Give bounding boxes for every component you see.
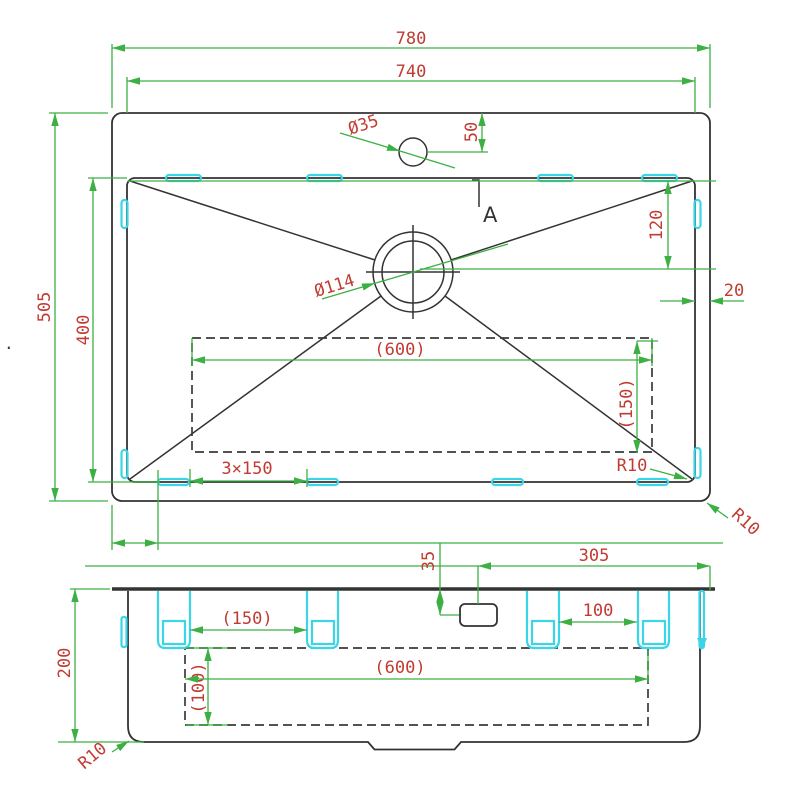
sink-outer-outline [112,113,710,501]
dim-section-cutout-width: (600) [374,658,425,678]
cad-drawing-canvas: . A [0,0,792,800]
mounting-clip [695,200,701,228]
dim-faucet-dia: Ø35 [346,111,381,140]
bowl-outline [127,178,695,482]
dim-faucet-from-edge: 305 [579,546,610,566]
dim-section-corner-radius: R10 [75,739,111,774]
section-faucet-knockout [460,604,497,626]
dim-bowl-depth: 400 [74,315,94,346]
mounting-clip [695,448,701,478]
hanger-bracket-clip [643,621,665,644]
top-view: A 780 740 505 40 [35,29,763,540]
dim-clip-pitch: 3×150 [221,459,272,479]
dim-cutout-depth: (150) [617,378,637,429]
dim-drain-offset: 120 [647,210,667,241]
dim-faucet-drop: 35 [419,551,439,571]
dim-outer-corner-radius: R10 [727,505,763,540]
dim-clip-span-left: (150) [221,609,272,629]
dim-drain-dia: Ø114 [312,271,357,302]
dim-overall-width: 780 [396,29,427,49]
dim-bowl-width: 740 [396,62,427,82]
dim-faucet-offset: 50 [462,122,482,142]
leader-faucet-dia [340,133,400,151]
dim-overall-depth: 505 [35,292,55,323]
leader-drain-dia [375,244,508,283]
dim-clip-span-right: 100 [583,601,614,621]
section-label: A [483,203,498,227]
hanger-bracket-clip [163,621,185,644]
mounting-clip [122,450,128,478]
dim-cutout-width: (600) [374,340,425,360]
leader-outer-corner [707,503,728,518]
mounting-clip [122,617,127,647]
dim-rim-gap: 20 [724,281,744,301]
mounting-clip [122,200,128,228]
hanger-bracket-clip [312,621,334,644]
dim-section-cutout-depth: (100) [189,662,209,713]
section-cut-marker [472,180,479,207]
leader-section-corner [112,741,129,752]
dim-bowl-corner-radius: R10 [617,456,648,476]
dim-section-height: 200 [55,648,75,679]
hanger-bracket-clip [532,621,554,644]
sink-technical-drawing: A 780 740 505 40 [0,0,792,800]
bowl-slope-line [130,181,375,260]
section-view: 200 R10 (150) 100 (100) (600) 305 35 [55,543,715,774]
